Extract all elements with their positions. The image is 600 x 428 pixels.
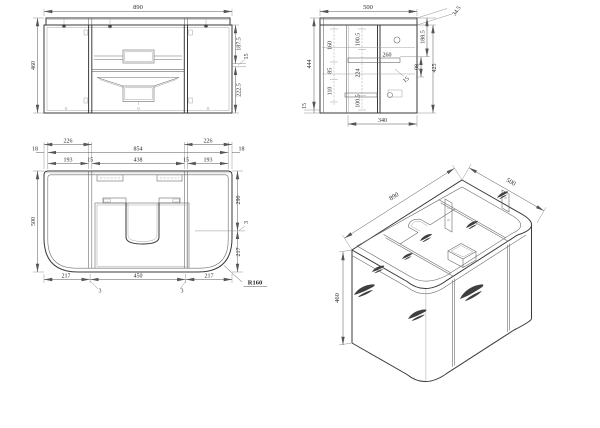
side-right-b-label: 98	[415, 64, 421, 70]
plan-dim-row3: 193 15 438 15 193	[48, 158, 228, 164]
side-col1-a: 160	[328, 41, 334, 50]
side-col2-b: 224	[356, 69, 362, 78]
side-width-dim: 500	[320, 4, 417, 16]
plan-radius-callout: R160	[224, 266, 267, 287]
plan-right-wall-label: 18	[239, 147, 245, 153]
side-width-label: 500	[363, 4, 373, 11]
front-right-dims: 187.5 15 222.5	[232, 25, 250, 113]
plan-row2-0: 193	[64, 158, 73, 164]
plan-gap-b-label: 3	[181, 289, 184, 295]
front-height-label: 460	[31, 61, 37, 70]
plan-drawer-box	[95, 203, 189, 268]
side-col2-c: 100.5	[356, 94, 362, 108]
side-right-c-label: 425	[432, 64, 438, 73]
side-col1-b: 85	[328, 68, 334, 74]
plan-row2-2: 438	[134, 158, 143, 164]
iso-view: 890 500 460	[334, 164, 546, 381]
plan-right-c-label: 217	[236, 248, 242, 257]
side-slide-label: 260	[383, 53, 392, 59]
vanity-cad-drawing: 890	[0, 0, 600, 428]
plan-top-right-label: 226	[204, 139, 213, 145]
side-countertop	[320, 18, 417, 25]
plan-right-a-label: 290	[236, 196, 242, 205]
plan-back-brackets	[97, 175, 182, 181]
iso-depth-label: 500	[505, 177, 517, 188]
swoosh-icon	[465, 220, 479, 230]
plan-bottom-b-label: 450	[134, 274, 143, 280]
side-height-label: 444	[307, 60, 313, 69]
plan-span-label: 854	[134, 147, 143, 153]
front-countertop	[46, 18, 230, 25]
plan-left-wall-label: 18	[32, 147, 38, 153]
side-bottom-left-label: 15	[302, 103, 308, 109]
side-bottom-label: 340	[378, 118, 387, 124]
plan-dim-row1: 226 226	[44, 139, 232, 145]
swoosh-icon	[407, 308, 429, 322]
technical-drawing-sheet: 890	[0, 0, 600, 428]
front-width-label: 890	[133, 4, 143, 11]
front-right-mid-label: 15	[244, 54, 250, 60]
side-right-a-label: 188.5	[421, 30, 427, 44]
plan-right-dims: 290 3 217	[195, 171, 250, 272]
side-view: 500	[302, 4, 463, 127]
iso-height-label: 460	[334, 293, 341, 303]
fastener-markers	[62, 19, 208, 28]
side-bottom-dim: 340	[348, 115, 417, 127]
plan-top-left-label: 226	[64, 139, 73, 145]
side-right-dims: 34.5 188.5 98 425	[400, 5, 463, 113]
plan-bottom-c-label: 217	[205, 274, 214, 280]
side-col2-a: 100.5	[356, 33, 362, 47]
front-height-dim: 460	[31, 18, 44, 113]
swoosh-icon	[419, 233, 433, 243]
plan-dim-row2: 854 18 18	[32, 147, 245, 153]
swoosh-icon	[371, 265, 385, 274]
front-right-top-label: 187.5	[237, 37, 243, 51]
plan-radius-label: R160	[248, 280, 262, 287]
side-left-dims: 444 15	[302, 18, 320, 113]
iso-length-label: 890	[388, 191, 400, 202]
plan-depth-dim: 500	[31, 171, 44, 272]
iso-decal-swooshes	[352, 190, 509, 322]
front-view: 890	[31, 4, 250, 113]
plan-row2-4: 193	[204, 158, 213, 164]
plan-depth-label: 500	[31, 217, 37, 226]
plan-gap-a-label: 3	[99, 289, 102, 295]
side-top-right-label: 34.5	[452, 5, 463, 17]
front-upper-drawer	[92, 50, 185, 72]
front-lower-drawer	[97, 78, 179, 106]
swoosh-icon	[401, 252, 414, 261]
side-col1-c: 110	[328, 87, 334, 96]
plan-row2-3: 15	[183, 158, 189, 164]
side-leader15-label: 15	[402, 76, 410, 84]
plan-bottom-a-label: 217	[62, 274, 71, 280]
swoosh-icon	[458, 282, 487, 303]
iso-body-edges	[352, 225, 532, 382]
front-right-bottom-label: 222.5	[237, 83, 243, 97]
plan-view: 226 226 854 18 18 193 15 438 15 193	[31, 139, 267, 295]
plan-bottom-dims: 217 450 217 3 3	[44, 274, 232, 295]
front-width-dim: 890	[44, 4, 232, 16]
swoosh-icon	[496, 190, 510, 199]
side-carcass	[320, 25, 417, 113]
plan-right-b-label: 3	[244, 221, 250, 224]
side-interior-dims: 160 85 110 100.5 224 100.5 260 15	[328, 33, 411, 108]
plan-row2-1: 15	[87, 158, 93, 164]
swoosh-icon	[352, 283, 376, 299]
plan-shell	[44, 171, 232, 272]
iso-dims: 890 500 460	[334, 164, 546, 345]
